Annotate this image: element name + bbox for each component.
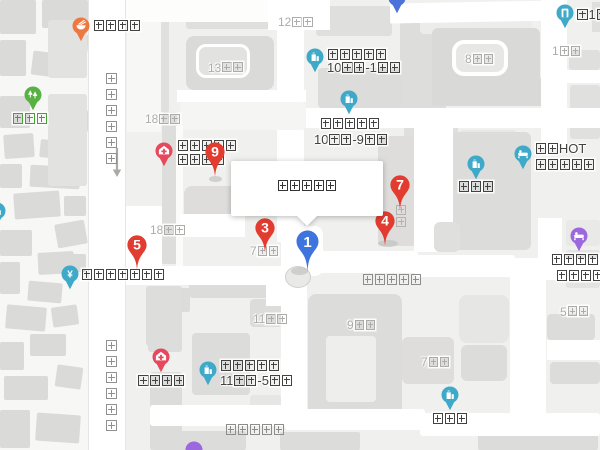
svg-text:1: 1 [303, 234, 311, 251]
svg-text:3: 3 [261, 219, 269, 235]
svg-text:9: 9 [211, 143, 219, 159]
svg-text:5: 5 [133, 237, 141, 253]
svg-text:7: 7 [396, 176, 404, 192]
svg-text:¥: ¥ [67, 269, 73, 280]
